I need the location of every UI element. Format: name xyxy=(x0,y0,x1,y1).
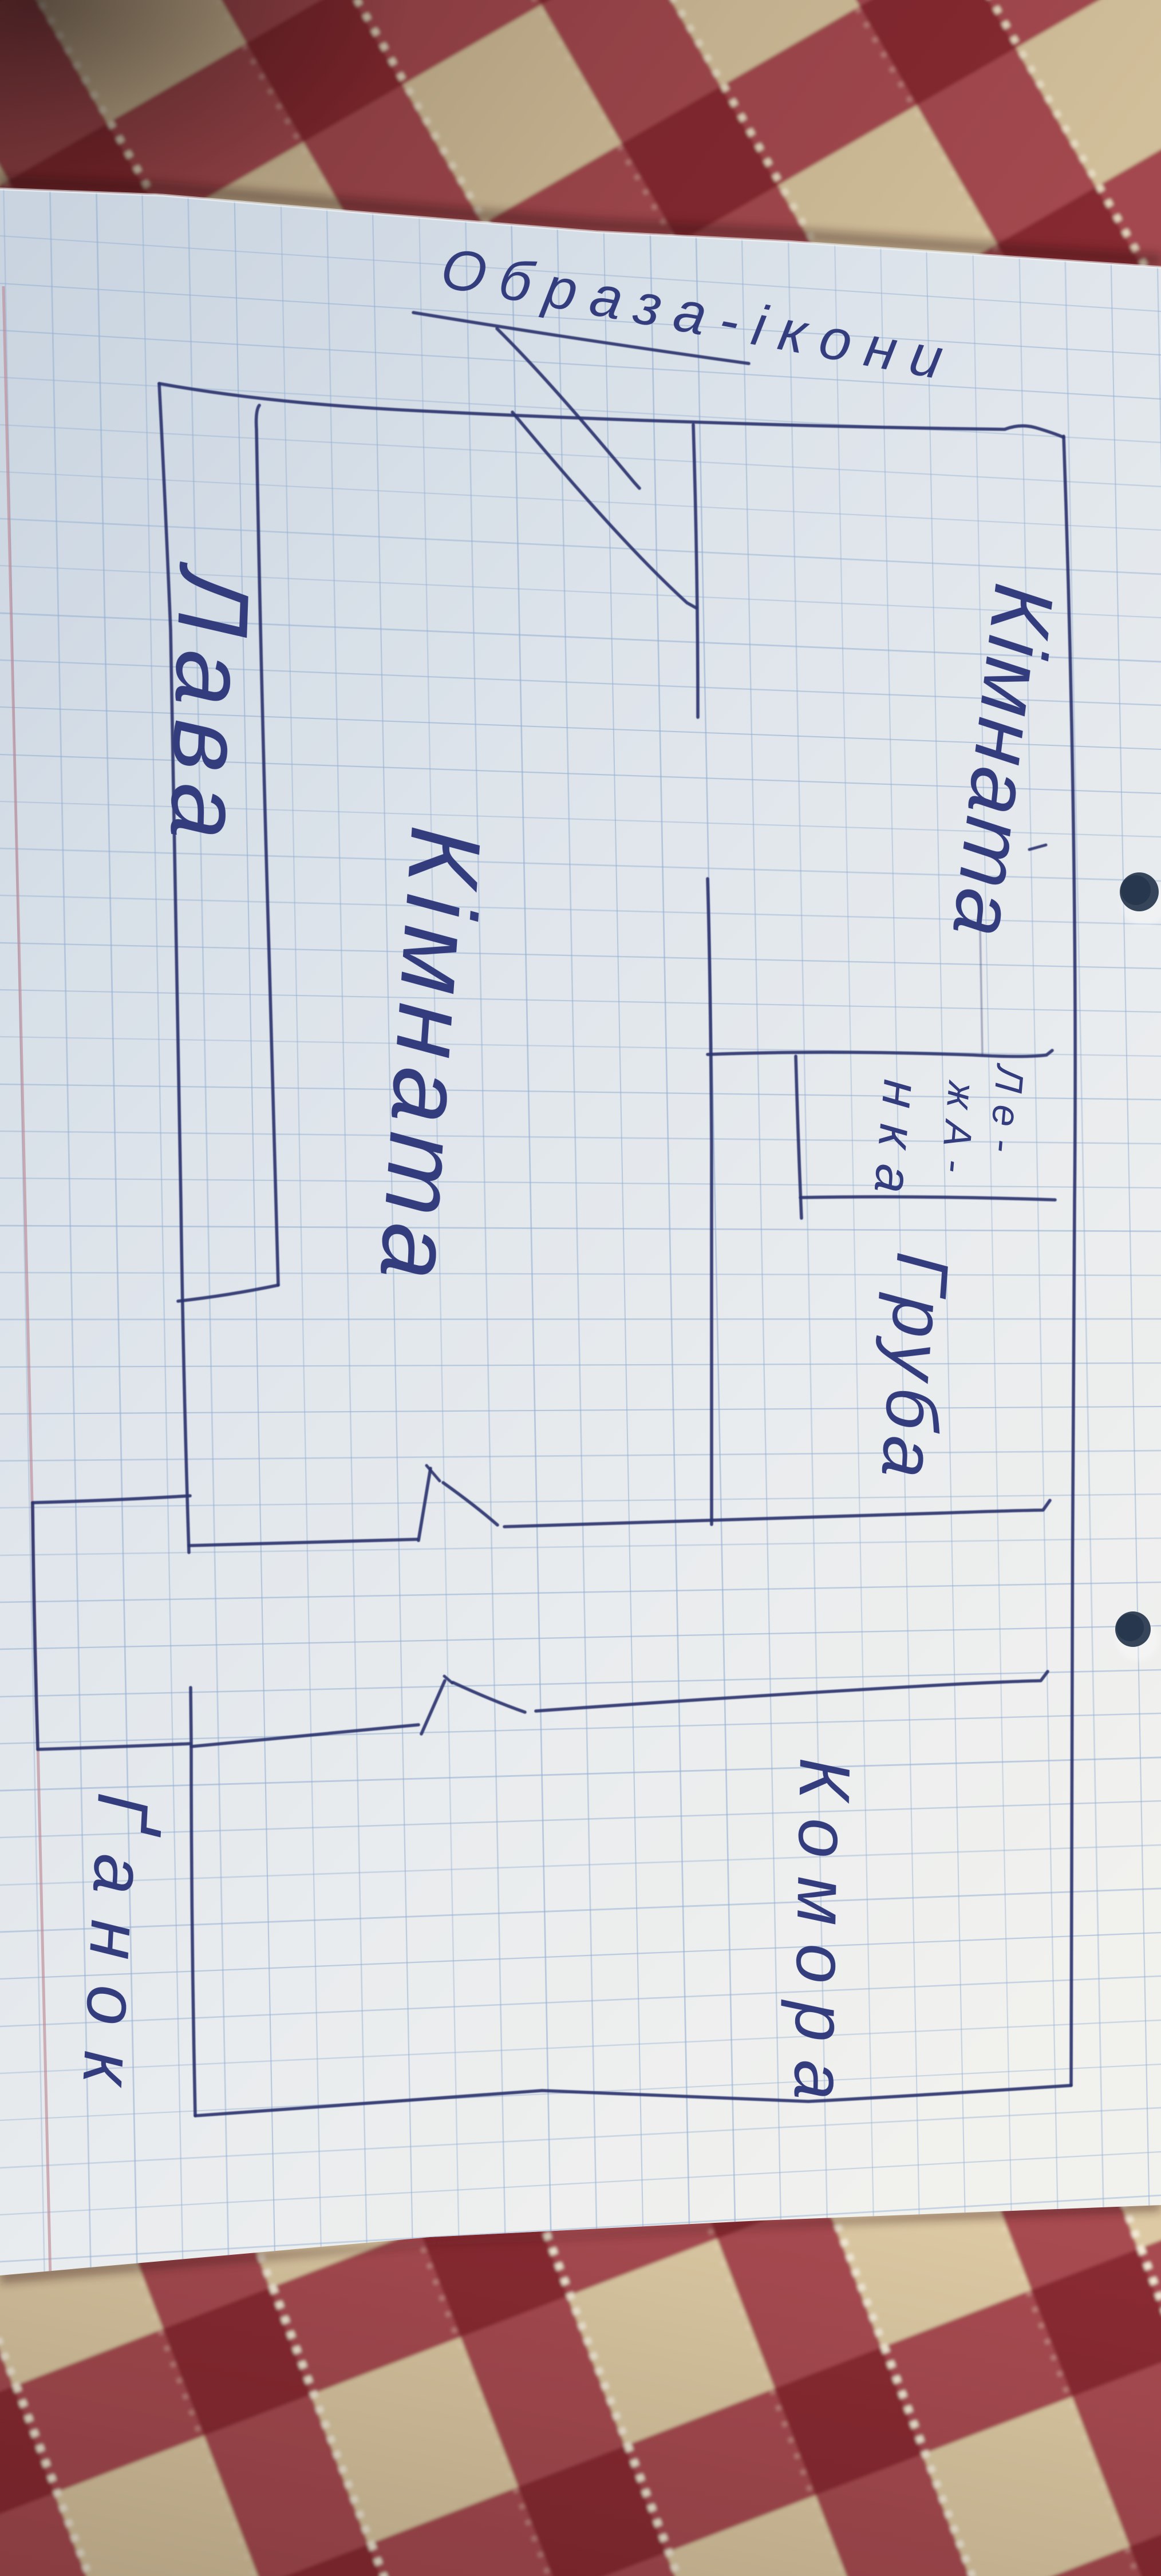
svg-text:Ле-: Ле- xyxy=(980,1062,1032,1167)
svg-text:нка: нка xyxy=(862,1077,930,1211)
svg-text:Груба: Груба xyxy=(866,1250,965,1487)
svg-text:Комора: Комора xyxy=(779,1757,864,2119)
svg-text:Лава: Лава xyxy=(149,560,271,855)
svg-text:жА-: жА- xyxy=(931,1078,984,1187)
svg-text:Ґанок: Ґанок xyxy=(66,1791,164,2113)
